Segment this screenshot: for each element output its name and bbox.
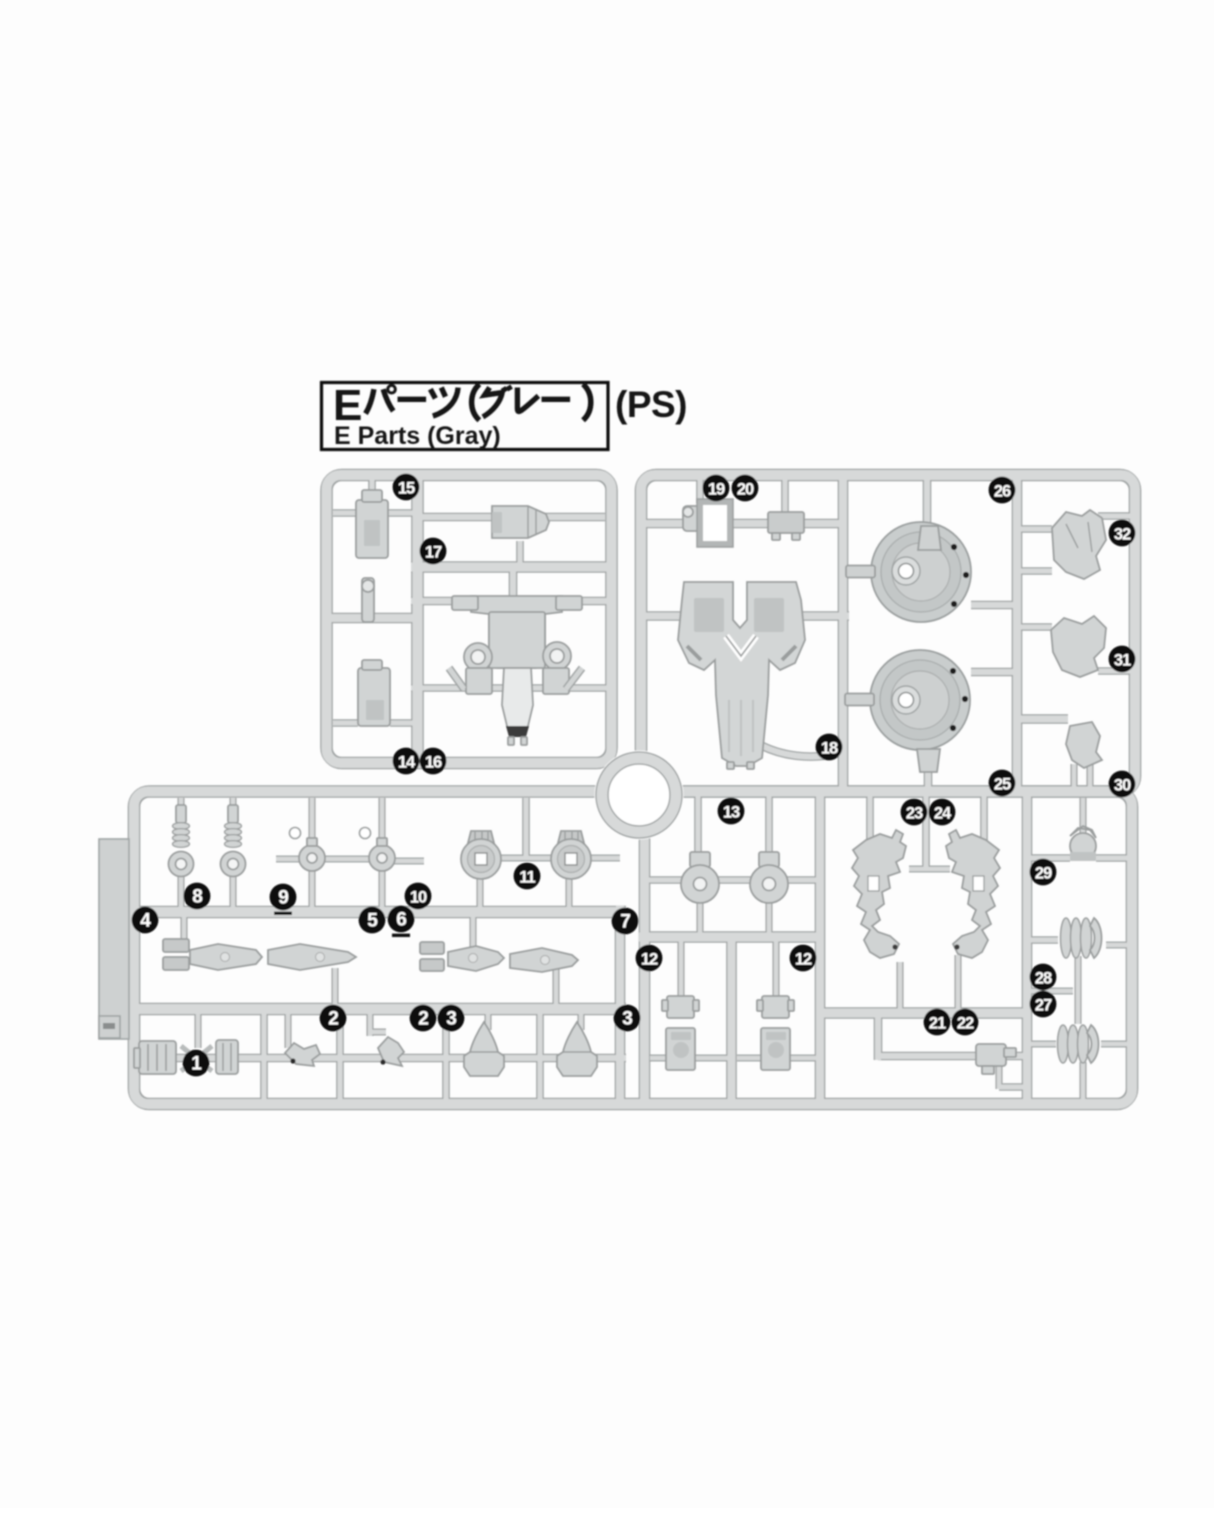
svg-text:31: 31 bbox=[1114, 652, 1131, 670]
svg-text:9: 9 bbox=[278, 888, 288, 909]
svg-text:24: 24 bbox=[934, 805, 952, 823]
svg-text:18: 18 bbox=[821, 740, 838, 758]
svg-text:32: 32 bbox=[1114, 526, 1131, 544]
svg-text:11: 11 bbox=[519, 869, 535, 887]
svg-text:15: 15 bbox=[398, 480, 415, 498]
svg-text:30: 30 bbox=[1114, 777, 1131, 795]
svg-text:19: 19 bbox=[708, 481, 725, 499]
svg-text:1: 1 bbox=[191, 1054, 202, 1075]
svg-text:22: 22 bbox=[957, 1015, 974, 1033]
svg-text:10: 10 bbox=[410, 889, 427, 907]
svg-text:7: 7 bbox=[620, 912, 630, 933]
svg-text:16: 16 bbox=[425, 754, 442, 772]
svg-text:25: 25 bbox=[994, 776, 1011, 794]
svg-text:6: 6 bbox=[396, 910, 406, 931]
svg-text:29: 29 bbox=[1035, 865, 1052, 883]
svg-text:(PS): (PS) bbox=[615, 384, 687, 425]
svg-text:3: 3 bbox=[446, 1009, 456, 1030]
svg-text:12: 12 bbox=[795, 951, 812, 969]
svg-text:28: 28 bbox=[1035, 970, 1052, 988]
svg-text:23: 23 bbox=[906, 805, 923, 823]
svg-text:17: 17 bbox=[425, 544, 442, 562]
svg-text:5: 5 bbox=[367, 911, 378, 932]
svg-text:27: 27 bbox=[1035, 997, 1052, 1015]
svg-text:12: 12 bbox=[641, 951, 658, 969]
svg-text:13: 13 bbox=[723, 804, 740, 822]
svg-text:3: 3 bbox=[622, 1009, 632, 1030]
svg-text:E Parts (Gray): E Parts (Gray) bbox=[334, 422, 501, 450]
svg-text:20: 20 bbox=[737, 481, 754, 499]
svg-text:2: 2 bbox=[418, 1009, 428, 1030]
svg-text:4: 4 bbox=[140, 911, 151, 932]
svg-text:26: 26 bbox=[994, 483, 1011, 501]
svg-text:21: 21 bbox=[929, 1015, 946, 1033]
svg-text:2: 2 bbox=[328, 1009, 338, 1030]
svg-text:8: 8 bbox=[192, 887, 202, 908]
svg-text:14: 14 bbox=[398, 754, 416, 772]
